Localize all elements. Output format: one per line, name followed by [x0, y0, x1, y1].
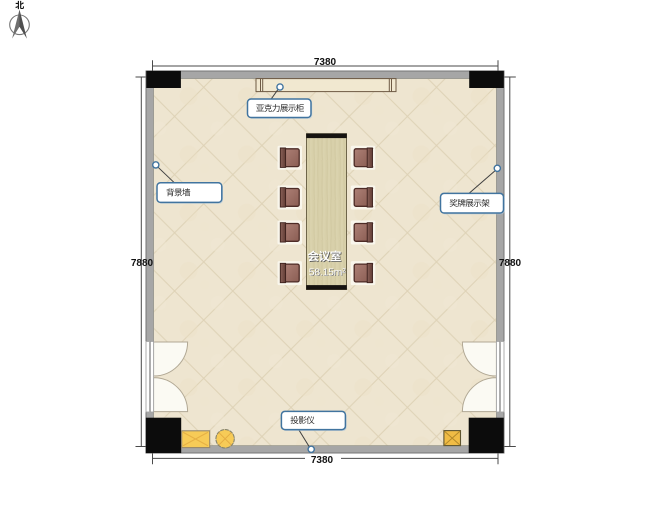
- svg-text:7380: 7380: [314, 57, 337, 68]
- svg-text:7380: 7380: [311, 455, 334, 466]
- svg-text:7880: 7880: [499, 258, 522, 269]
- svg-text:7880: 7880: [131, 258, 154, 269]
- svg-text:58.15m²: 58.15m²: [309, 267, 346, 278]
